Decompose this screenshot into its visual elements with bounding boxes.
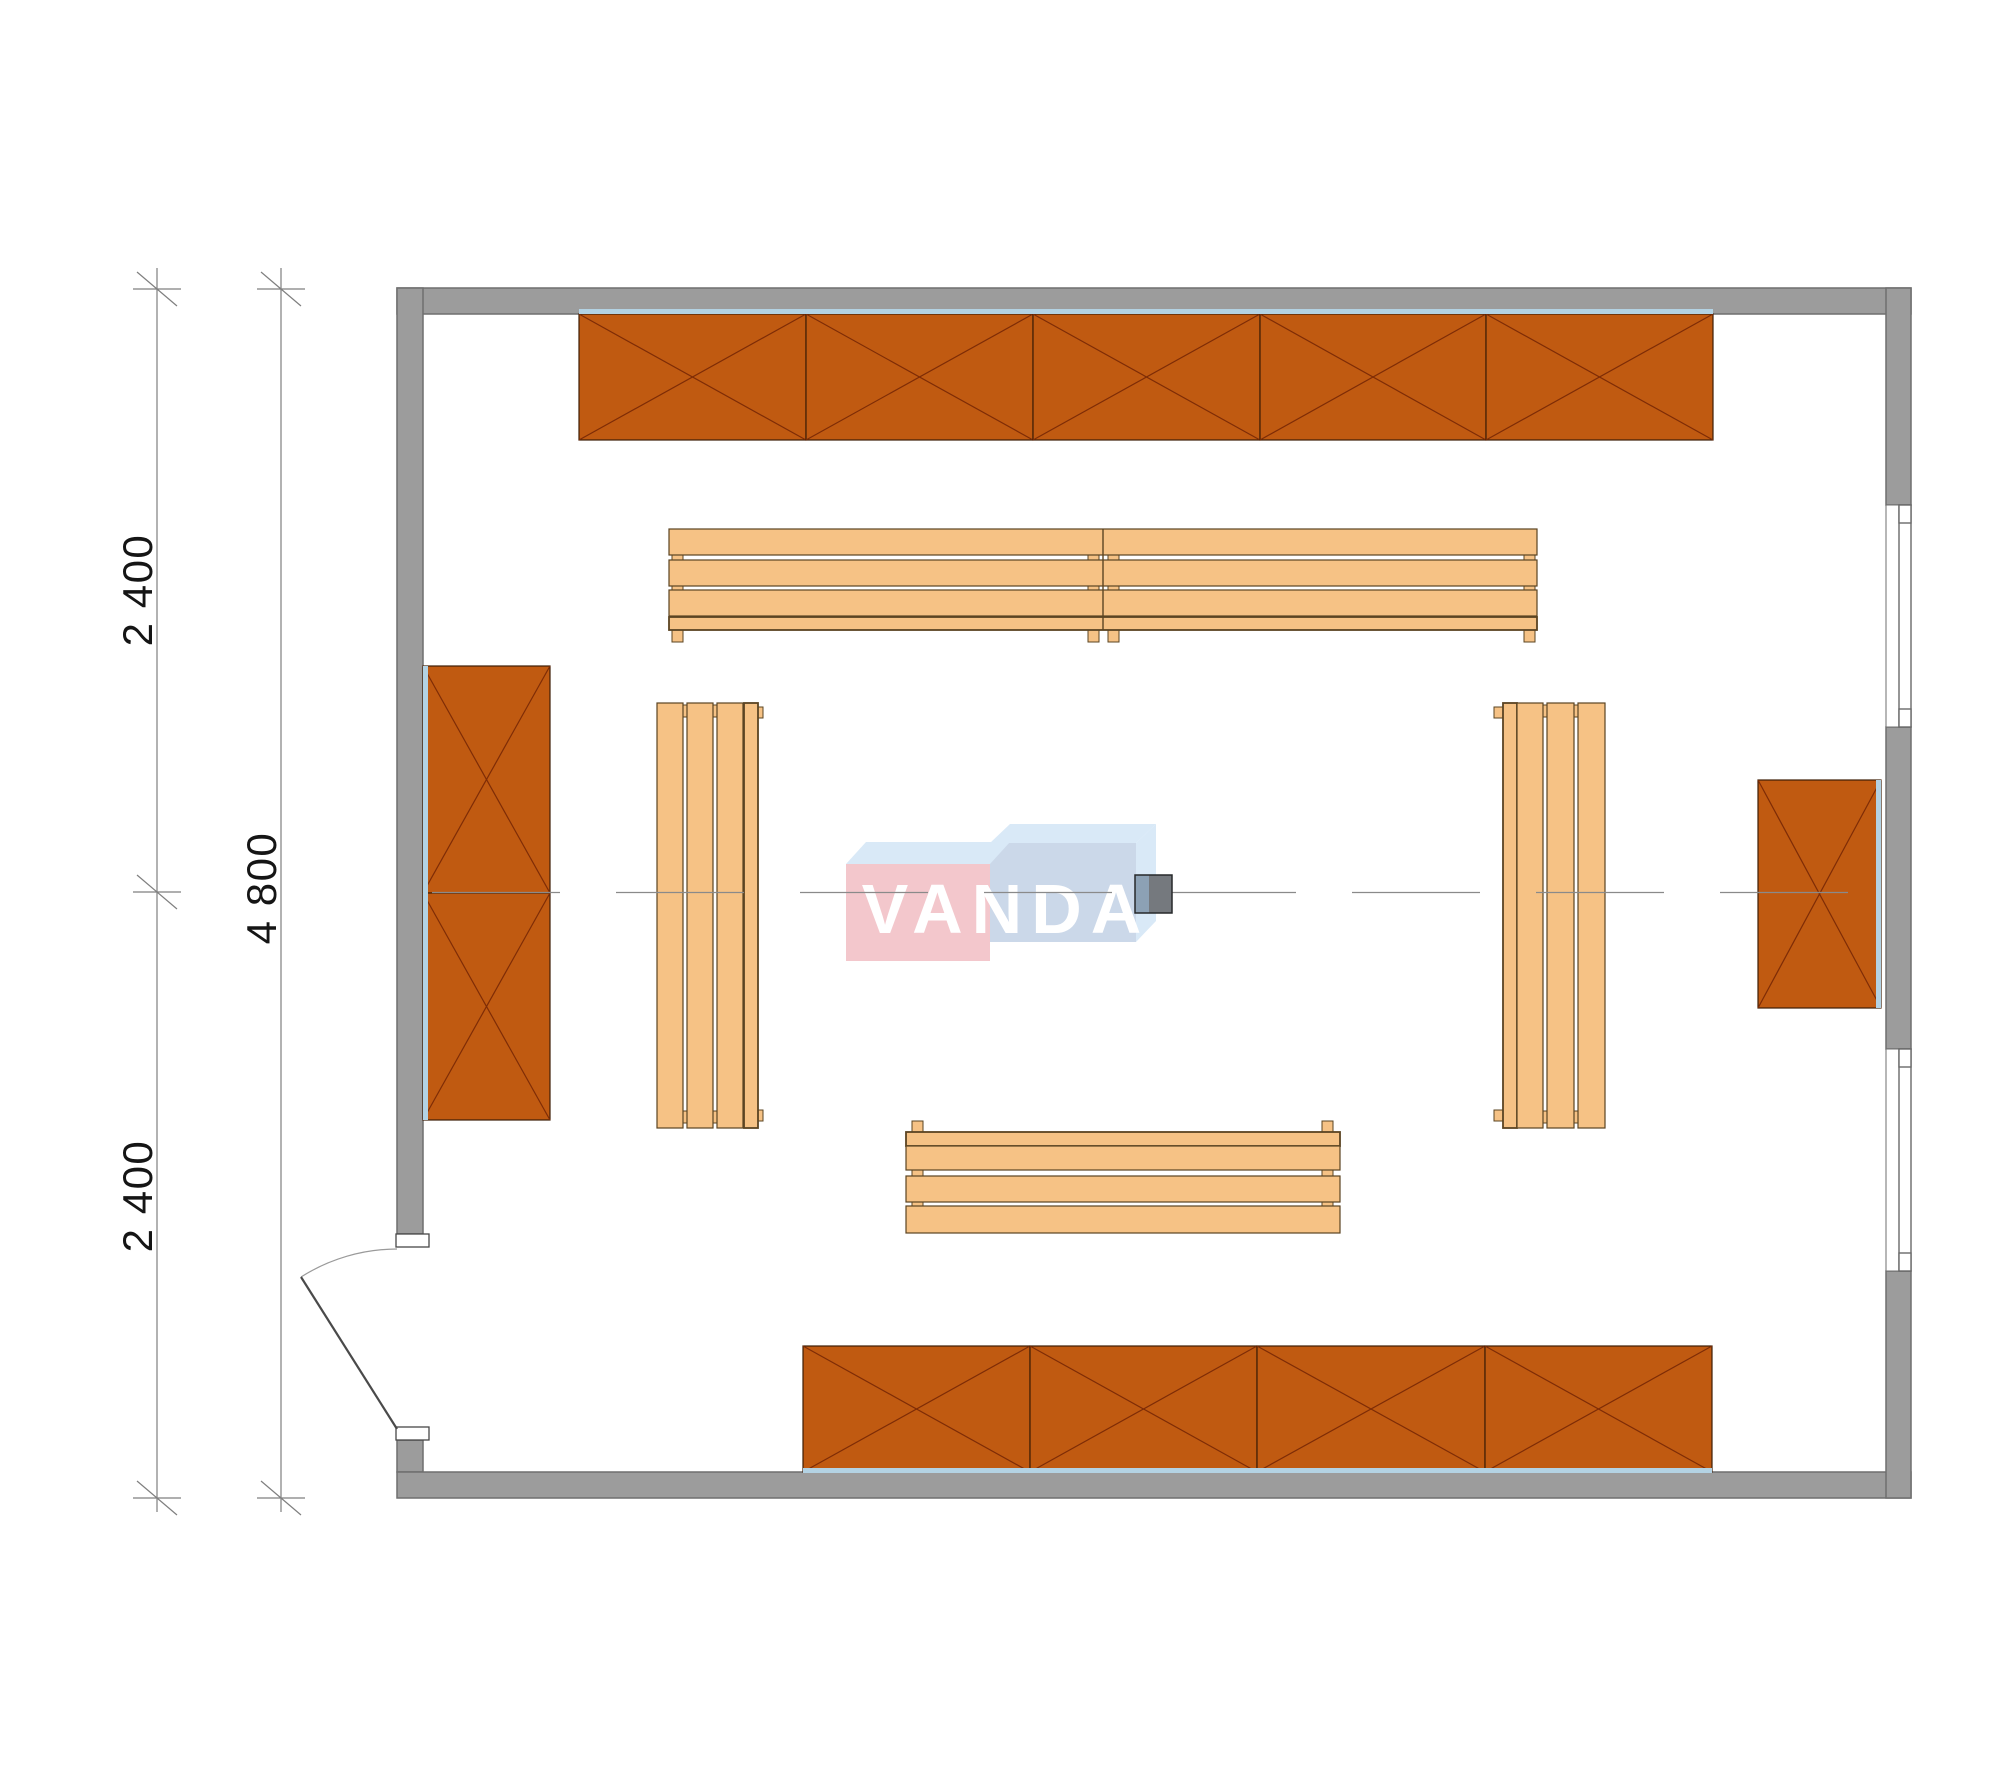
watermark-block-bevel xyxy=(990,824,1156,843)
bench-top-pair xyxy=(669,529,1537,642)
window-upper xyxy=(1886,505,1911,727)
entry-door xyxy=(301,1234,429,1440)
dim-label-overall-left: 4 800 xyxy=(238,832,285,945)
bench-bottom xyxy=(906,1121,1340,1233)
wall-right-pier xyxy=(1886,727,1911,1049)
wall-left-door-stub xyxy=(397,1440,423,1472)
window-lower-glazing xyxy=(1899,1049,1911,1271)
wall-bottom xyxy=(397,1472,1911,1498)
watermark-block-bevel xyxy=(846,842,1010,864)
door-leaf xyxy=(301,1277,397,1429)
door-jamb-lower xyxy=(396,1427,429,1440)
cabinet-right-wall xyxy=(1758,780,1881,1008)
window-lower xyxy=(1886,1049,1911,1271)
wall-right-upper xyxy=(1886,288,1911,505)
watermark-text: VANDA xyxy=(862,870,1151,948)
floor-plan-drawing: 2 400 2 400 4 800 xyxy=(0,0,2000,1786)
dim-label-bottom-left: 2 400 xyxy=(114,1140,161,1253)
cabinet-row-bottom xyxy=(803,1346,1712,1472)
dimension-lines: 2 400 2 400 4 800 xyxy=(114,268,305,1515)
floor-plan-page: 2 400 2 400 4 800 xyxy=(0,0,2000,1786)
door-jamb-upper xyxy=(396,1234,429,1247)
dim-label-top-left: 2 400 xyxy=(114,534,161,647)
bench-left xyxy=(657,703,763,1128)
bench-right xyxy=(1494,703,1605,1128)
wall-right-lower xyxy=(1886,1271,1911,1498)
window-upper-glazing xyxy=(1899,505,1911,727)
wall-left xyxy=(397,288,423,1234)
center-column xyxy=(1135,875,1172,913)
cabinet-row-top xyxy=(579,314,1713,440)
door-swing-arc xyxy=(301,1249,397,1277)
